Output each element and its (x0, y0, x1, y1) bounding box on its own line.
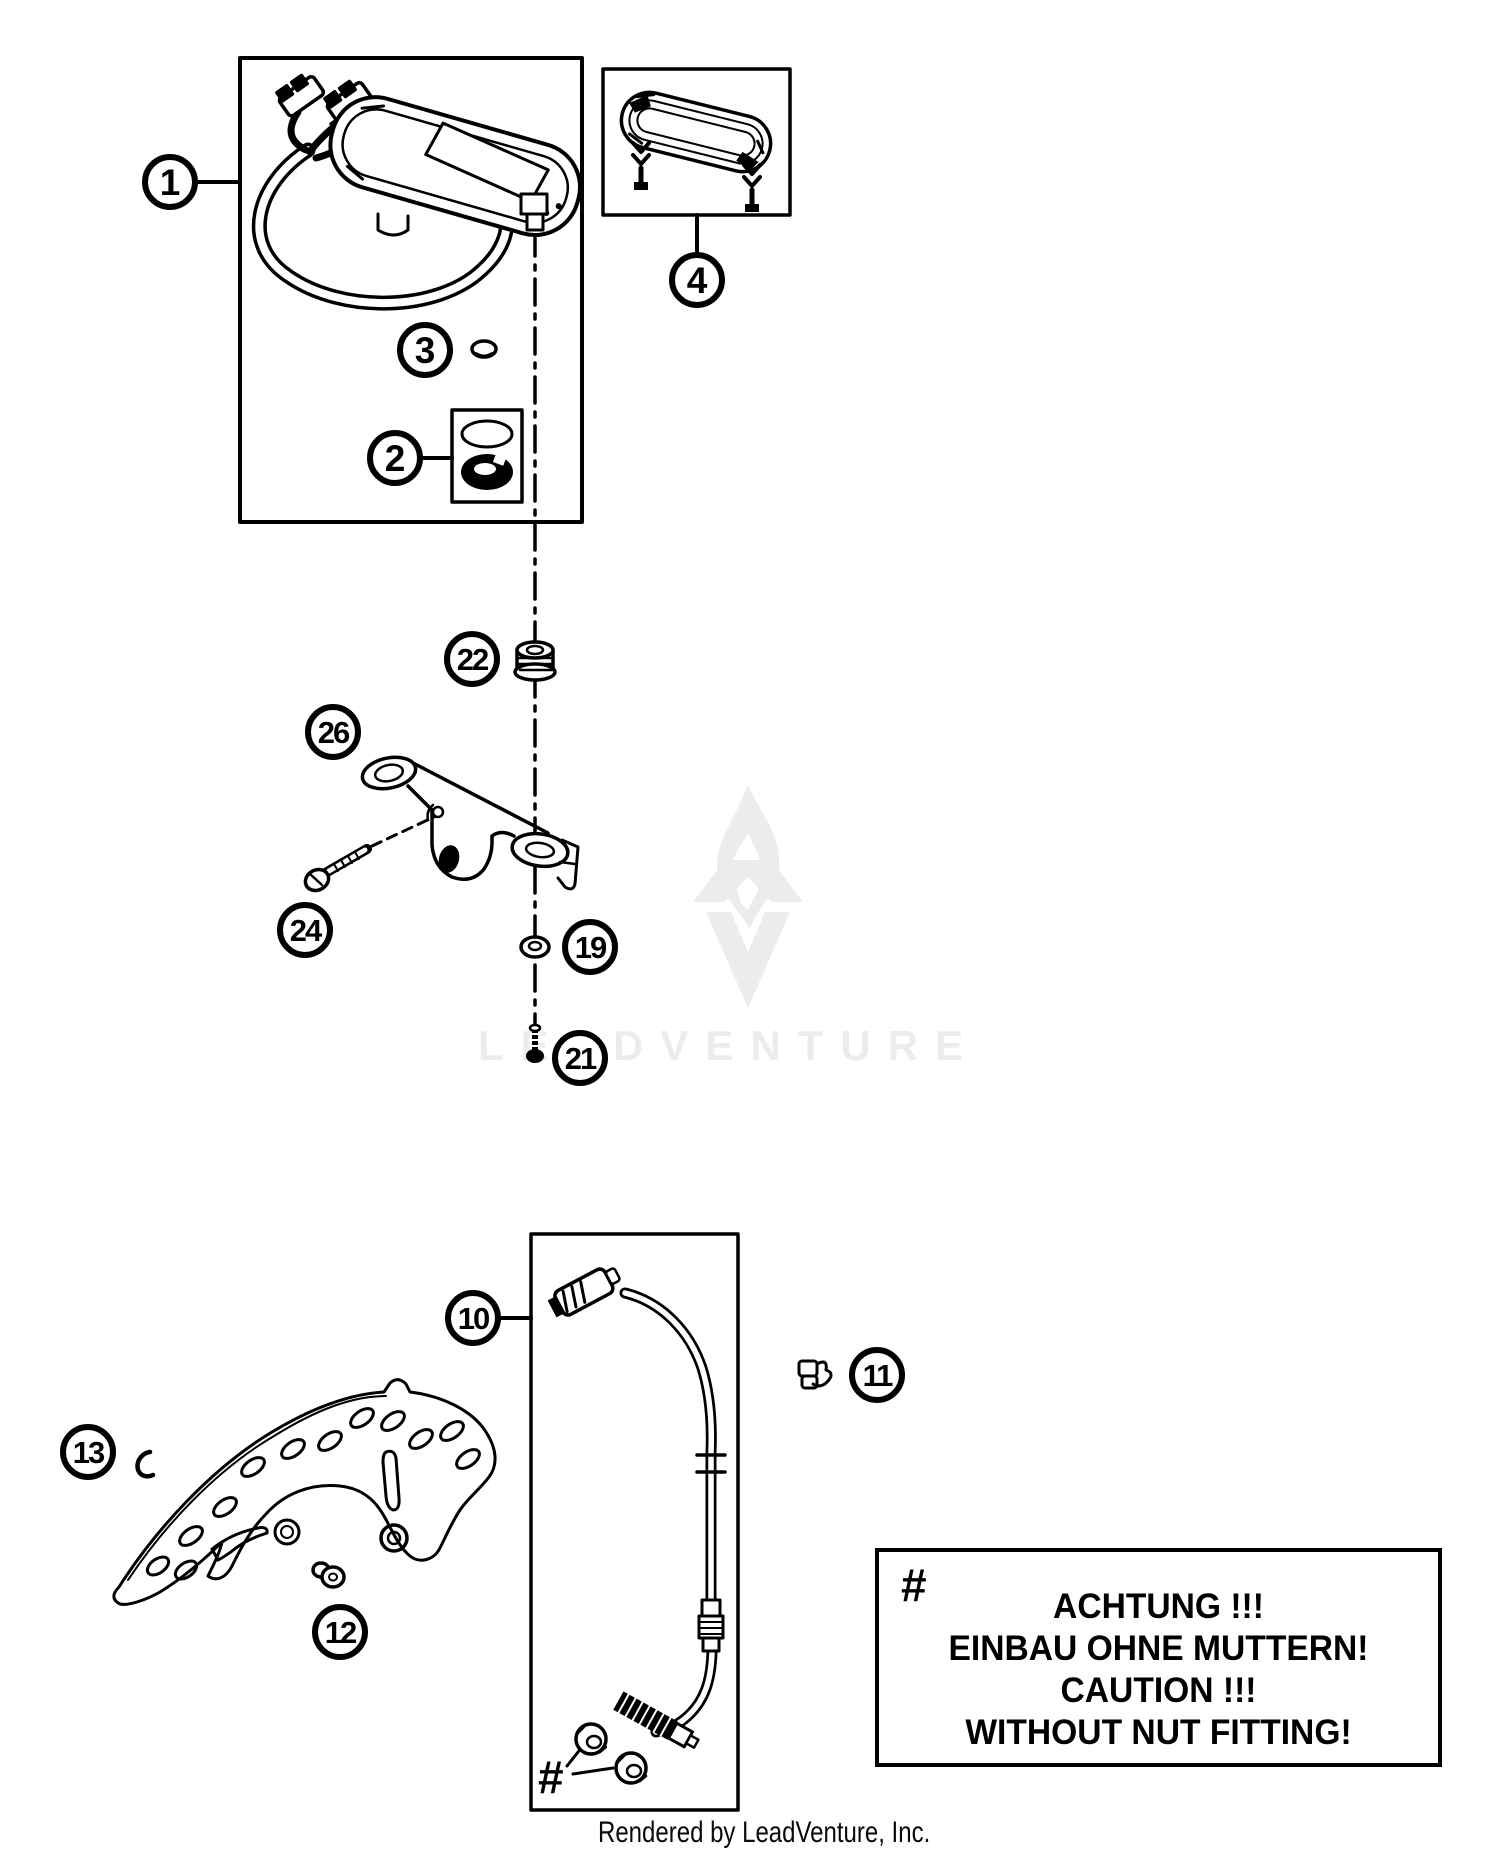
cable-clip-drawing (799, 1361, 831, 1388)
render-credit-caption: Rendered by LeadVenture, Inc. (598, 1816, 930, 1850)
bracket-drawing (359, 753, 578, 889)
warning-line-german-2: EINBAU OHNE MUTTERN! (890, 1628, 1427, 1670)
callout-1-number: 1 (160, 164, 181, 201)
callout-22: 22 (444, 631, 500, 687)
guard-nut-drawing (313, 1563, 344, 1587)
callout-13-number: 13 (73, 1437, 103, 1468)
callout-24-number: 24 (290, 915, 320, 946)
warning-text: ACHTUNG !!! EINBAU OHNE MUTTERN! CAUTION… (890, 1586, 1427, 1754)
nut-note-hash: # (538, 1750, 564, 1804)
callout-12: 12 (312, 1604, 368, 1660)
mount-screw-drawing (302, 849, 367, 894)
callout-4: 4 (669, 252, 725, 308)
callout-12-number: 12 (325, 1617, 355, 1648)
warning-box: # ACHTUNG !!! EINBAU OHNE MUTTERN! CAUTI… (875, 1548, 1442, 1767)
callout-24: 24 (277, 902, 333, 958)
callout-3-number: 3 (415, 332, 436, 369)
warning-line-english-1: CAUTION !!! (890, 1670, 1427, 1712)
callout-4-number: 4 (687, 262, 708, 299)
cable-nut-icon (576, 1724, 646, 1783)
seal-cap-drawing (472, 341, 496, 357)
disc-guard-drawing (114, 1380, 495, 1605)
callout-10: 10 (445, 1290, 501, 1346)
callout-1: 1 (142, 154, 198, 210)
callout-13: 13 (60, 1424, 116, 1480)
callout-19: 19 (562, 919, 618, 975)
callout-10-number: 10 (458, 1303, 488, 1334)
clip-drawing (137, 1452, 153, 1476)
callout-2-number: 2 (385, 440, 406, 477)
callout-11: 11 (849, 1347, 905, 1403)
callout-3: 3 (397, 322, 453, 378)
speedo-cable-drawing (546, 1262, 725, 1783)
washer-drawing (521, 937, 549, 957)
callout-21: 21 (552, 1030, 608, 1086)
small-screw-drawing (526, 1025, 544, 1063)
callout-26-number: 26 (318, 717, 348, 748)
damper-nut-drawing (515, 642, 555, 680)
callout-26: 26 (305, 704, 361, 760)
callout-2: 2 (367, 430, 423, 486)
callout-22-number: 22 (457, 644, 487, 675)
speedometer-assembly-drawing (259, 70, 590, 303)
callout-11-number: 11 (863, 1360, 892, 1391)
callout-19-number: 19 (575, 932, 605, 963)
warning-line-english-2: WITHOUT NUT FITTING! (890, 1712, 1427, 1754)
callout-21-number: 21 (565, 1043, 595, 1074)
cover-drawing (615, 86, 776, 212)
warning-line-german-1: ACHTUNG !!! (890, 1586, 1427, 1628)
parts-diagram-page: LEADVENTURE (0, 0, 1500, 1856)
